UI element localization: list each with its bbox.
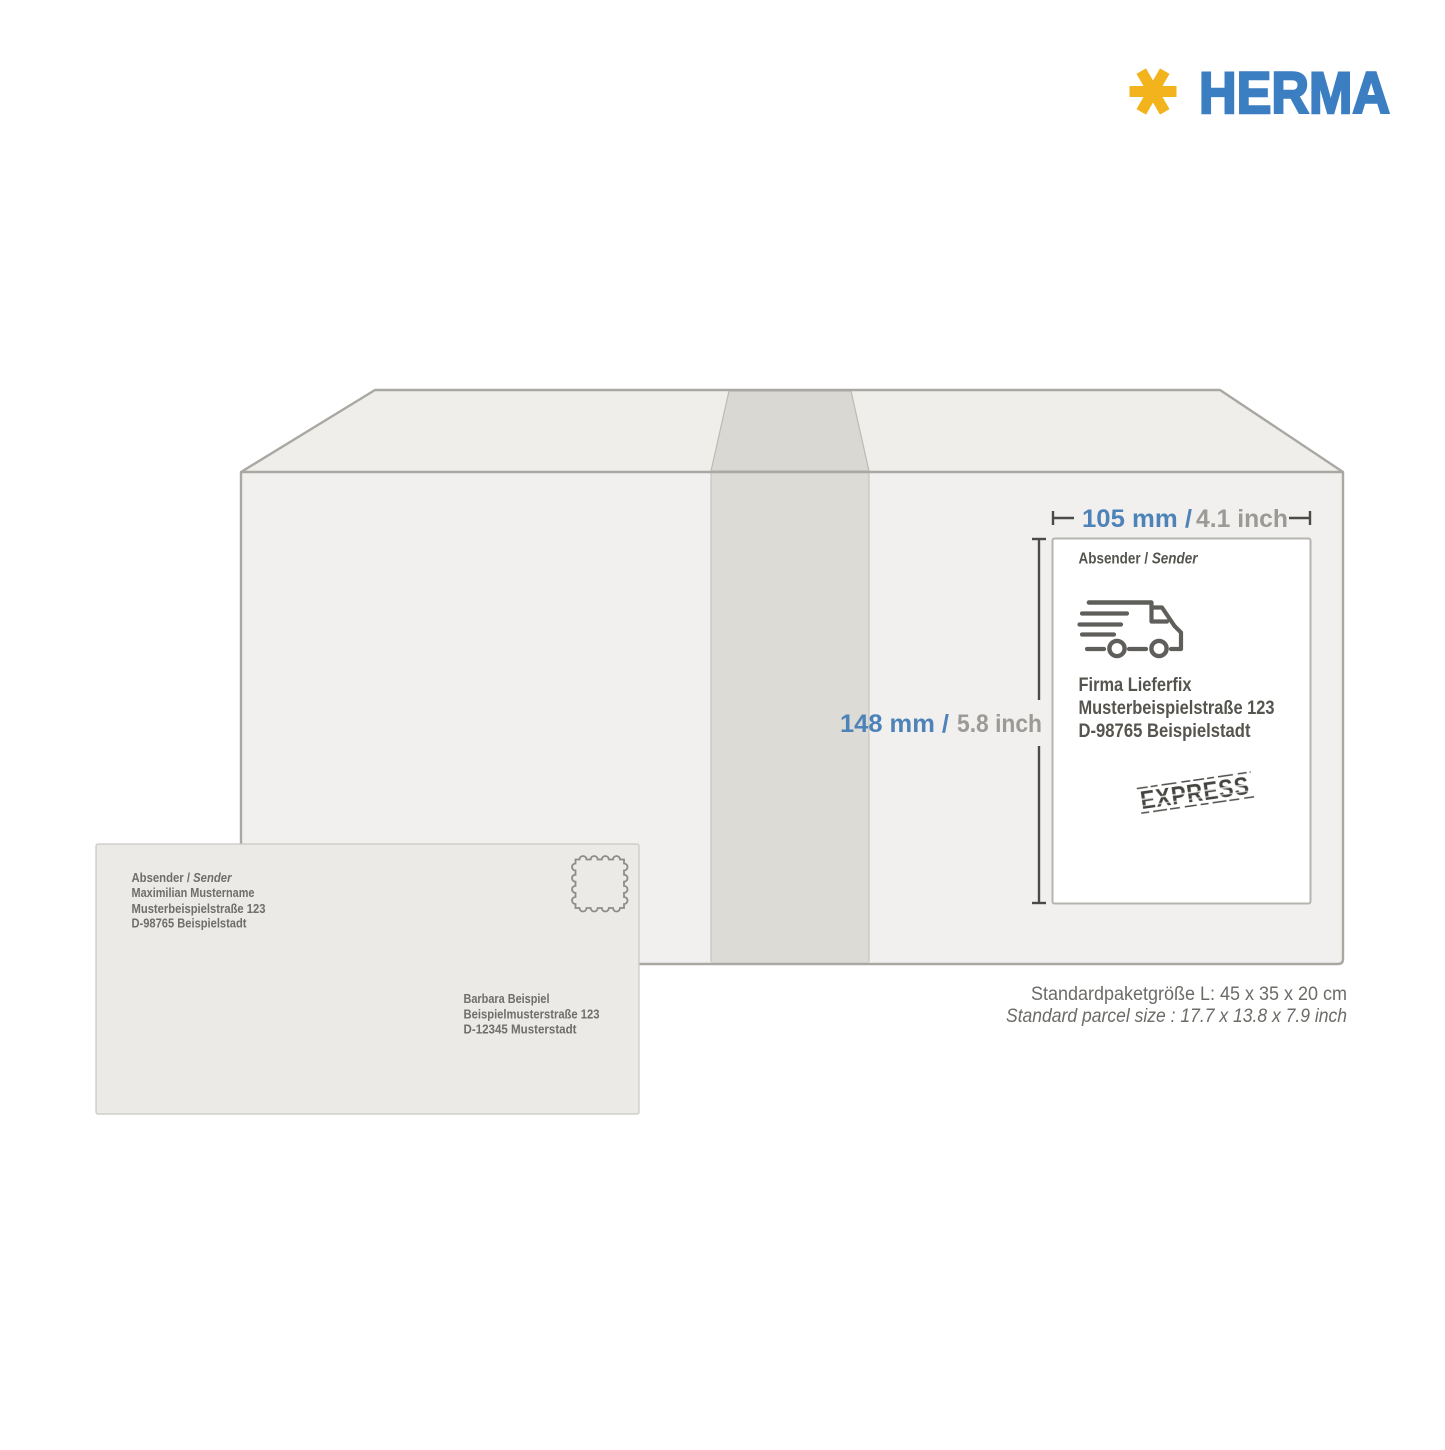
svg-text:D-12345 Musterstadt: D-12345 Musterstadt: [464, 1022, 578, 1037]
svg-text:Beispielmusterstraße 123: Beispielmusterstraße 123: [464, 1007, 600, 1022]
svg-text:Standard parcel size : 17.7 x: Standard parcel size : 17.7 x 13.8 x 7.9…: [1006, 1006, 1347, 1027]
svg-text:D-98765 Beispielstadt: D-98765 Beispielstadt: [132, 916, 248, 931]
svg-text:105 mm /: 105 mm /: [1082, 505, 1192, 533]
svg-text:Standardpaketgröße L: 45 x 35: Standardpaketgröße L: 45 x 35 x 20 cm: [1031, 984, 1347, 1005]
svg-text:Absender / Sender: Absender / Sender: [1079, 551, 1199, 568]
svg-text:D-98765 Beispielstadt: D-98765 Beispielstadt: [1079, 721, 1252, 742]
svg-text:Musterbeispielstraße 123: Musterbeispielstraße 123: [132, 901, 266, 916]
svg-text:4.1 inch: 4.1 inch: [1196, 505, 1288, 533]
svg-text:Firma Lieferfix: Firma Lieferfix: [1079, 675, 1192, 696]
svg-text:Barbara Beispiel: Barbara Beispiel: [464, 991, 550, 1006]
svg-text:HERMA: HERMA: [1199, 61, 1390, 126]
svg-text:5.8 inch: 5.8 inch: [957, 710, 1042, 738]
svg-text:Absender / Sender: Absender / Sender: [132, 870, 233, 885]
svg-text:148 mm /: 148 mm /: [840, 710, 949, 738]
svg-text:Musterbeispielstraße 123: Musterbeispielstraße 123: [1079, 698, 1275, 719]
svg-text:Maximilian Mustername: Maximilian Mustername: [132, 885, 255, 900]
